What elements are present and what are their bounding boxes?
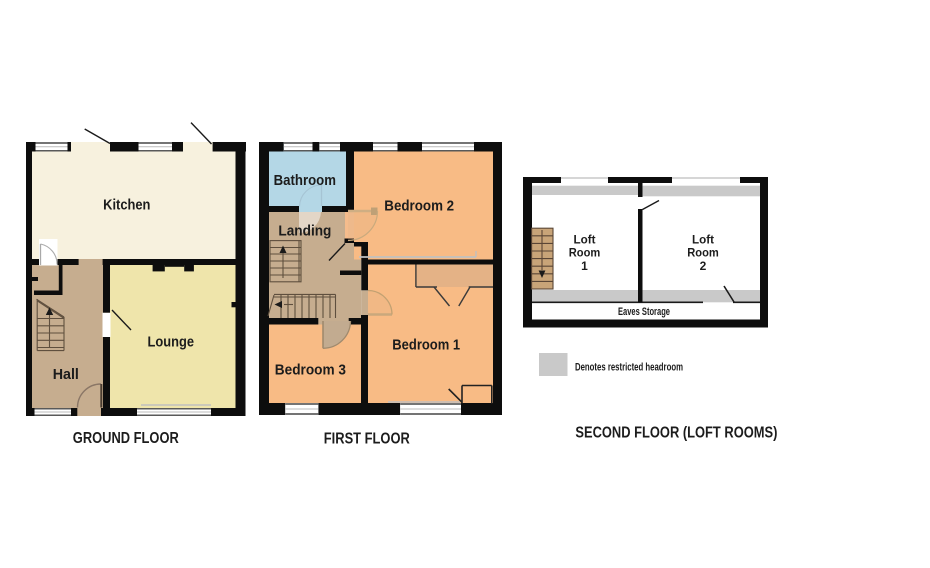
svg-text:FIRST FLOOR: FIRST FLOOR [324, 431, 410, 448]
svg-text:Landing: Landing [278, 223, 331, 240]
svg-text:Bedroom 3: Bedroom 3 [275, 362, 346, 379]
svg-text:SECOND FLOOR (LOFT ROOMS): SECOND FLOOR (LOFT ROOMS) [575, 425, 777, 442]
svg-text:Bathroom: Bathroom [274, 172, 336, 189]
svg-text:Lounge: Lounge [148, 334, 195, 351]
svg-text:Hall: Hall [53, 366, 79, 383]
svg-text:Bedroom 1: Bedroom 1 [392, 336, 460, 353]
svg-text:Room: Room [569, 246, 601, 260]
svg-text:Kitchen: Kitchen [103, 196, 150, 213]
svg-text:Denotes restricted headroom: Denotes restricted headroom [575, 362, 683, 374]
svg-text:1: 1 [581, 259, 588, 273]
svg-text:2: 2 [700, 259, 707, 273]
svg-text:GROUND FLOOR: GROUND FLOOR [73, 430, 179, 447]
svg-text:Eaves Storage: Eaves Storage [618, 306, 670, 318]
svg-text:Loft: Loft [574, 233, 596, 247]
svg-text:Bedroom 2: Bedroom 2 [384, 198, 454, 215]
svg-text:Loft: Loft [692, 233, 714, 247]
svg-text:Room: Room [687, 246, 719, 260]
